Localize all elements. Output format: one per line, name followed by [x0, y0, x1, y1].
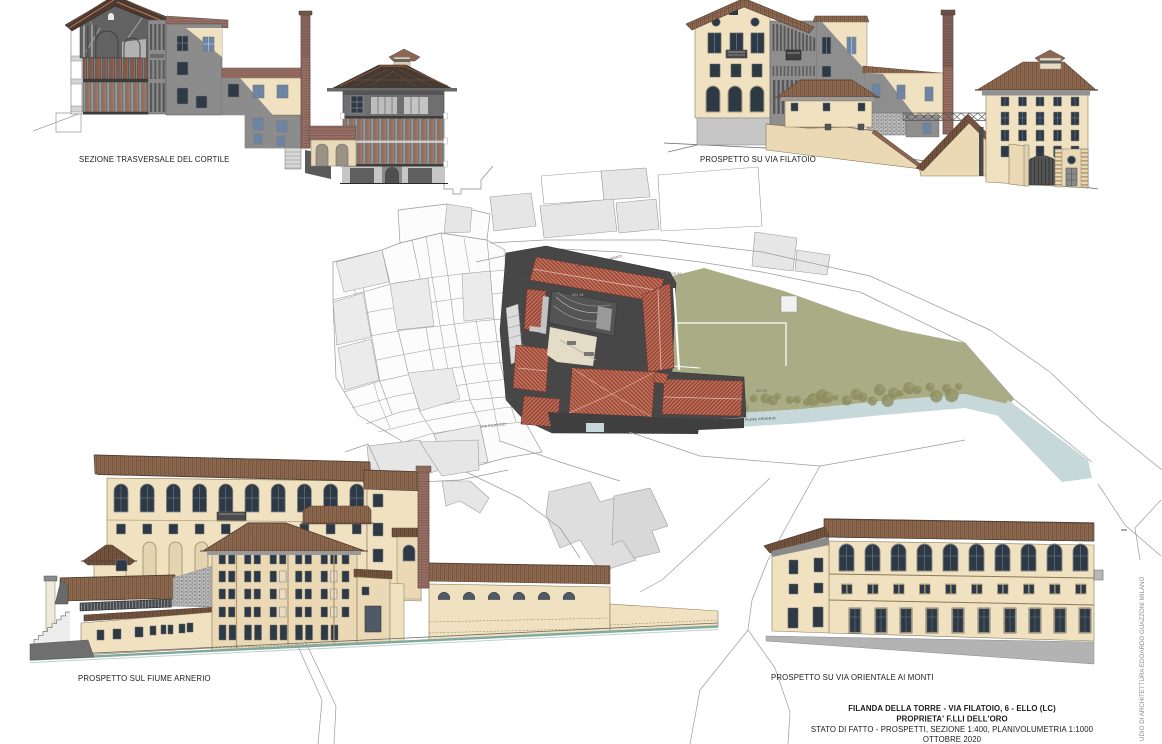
- svg-text:417.00: 417.00: [756, 389, 768, 393]
- svg-text:PROSPETTO SU VIA FILATOIO: PROSPETTO SU VIA FILATOIO: [700, 155, 816, 164]
- svg-text:PROSPETTO SU VIA ORIENTALE AI: PROSPETTO SU VIA ORIENTALE AI MONTI: [771, 673, 934, 682]
- svg-text:SEZIONE TRASVERSALE DEL CORTIL: SEZIONE TRASVERSALE DEL CORTILE: [79, 155, 230, 164]
- svg-text:423.00: 423.00: [670, 272, 682, 276]
- svg-text:UDIO DI ARCHITETTURA EDOARDO G: UDIO DI ARCHITETTURA EDOARDO GUAZZONI MI…: [1139, 576, 1146, 741]
- svg-text:PROSPETTO SUL FIUME ARNERIO: PROSPETTO SUL FIUME ARNERIO: [78, 674, 211, 683]
- svg-text:421.16: 421.16: [572, 293, 584, 297]
- svg-text:FILANDA DELLA TORRE - VIA FILA: FILANDA DELLA TORRE - VIA FILATOIO, 6 - …: [848, 704, 1056, 713]
- svg-text:PROPRIETA' F.LLI DELL'ORO: PROPRIETA' F.LLI DELL'ORO: [896, 715, 1007, 724]
- svg-text:OTTOBRE 2020: OTTOBRE 2020: [923, 735, 982, 744]
- svg-text:STATO DI FATTO - PROSPETTI, SE: STATO DI FATTO - PROSPETTI, SEZIONE 1:40…: [811, 725, 1094, 734]
- svg-text:413.00: 413.00: [506, 397, 518, 401]
